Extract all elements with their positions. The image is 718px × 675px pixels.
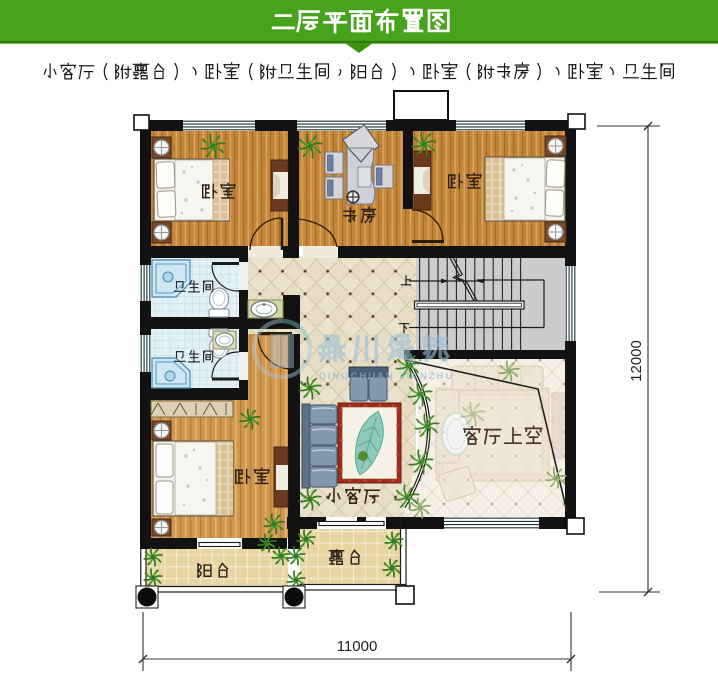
svg-text:DINGCHUAN JIANZHU: DINGCHUAN JIANZHU — [319, 371, 454, 382]
svg-text:11000: 11000 — [337, 638, 378, 655]
svg-text:12000: 12000 — [628, 340, 645, 382]
